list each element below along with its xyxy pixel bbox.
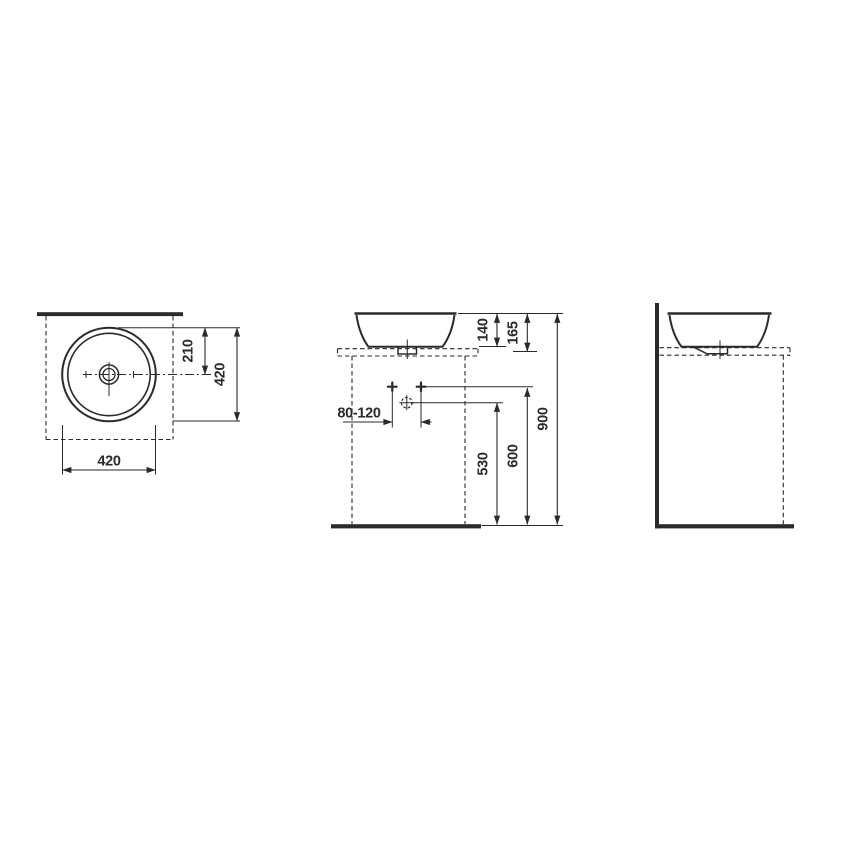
- technical-drawing-canvas: 210 420 420: [0, 0, 868, 868]
- dim-label-420-horizontal: 420: [97, 454, 121, 470]
- drain-fitting-side: [694, 347, 728, 354]
- basin-body-front: [357, 315, 455, 347]
- dim-label-165: 165: [506, 321, 522, 345]
- dim-label-900: 900: [536, 407, 552, 431]
- top-view: 210 420 420: [37, 312, 240, 474]
- top-view-wall-line: [37, 312, 183, 316]
- dim-label-600: 600: [506, 444, 522, 468]
- dim-label-80-120: 80-120: [337, 406, 381, 422]
- floor-line: [331, 524, 481, 528]
- dim-label-420-vertical: 420: [213, 363, 229, 387]
- dim-label-210: 210: [181, 339, 197, 363]
- side-wall-line: [655, 303, 659, 528]
- side-view: [655, 303, 794, 528]
- side-floor-line: [655, 524, 794, 528]
- dim-label-530: 530: [476, 452, 492, 476]
- basin-body-side: [670, 315, 770, 347]
- front-view: 80-120 140 165 530 600 900: [331, 314, 563, 529]
- fixing-hole-left-icon: [388, 383, 397, 392]
- dim-label-140: 140: [476, 318, 492, 342]
- washbasin-dimension-drawing: 210 420 420: [0, 0, 868, 868]
